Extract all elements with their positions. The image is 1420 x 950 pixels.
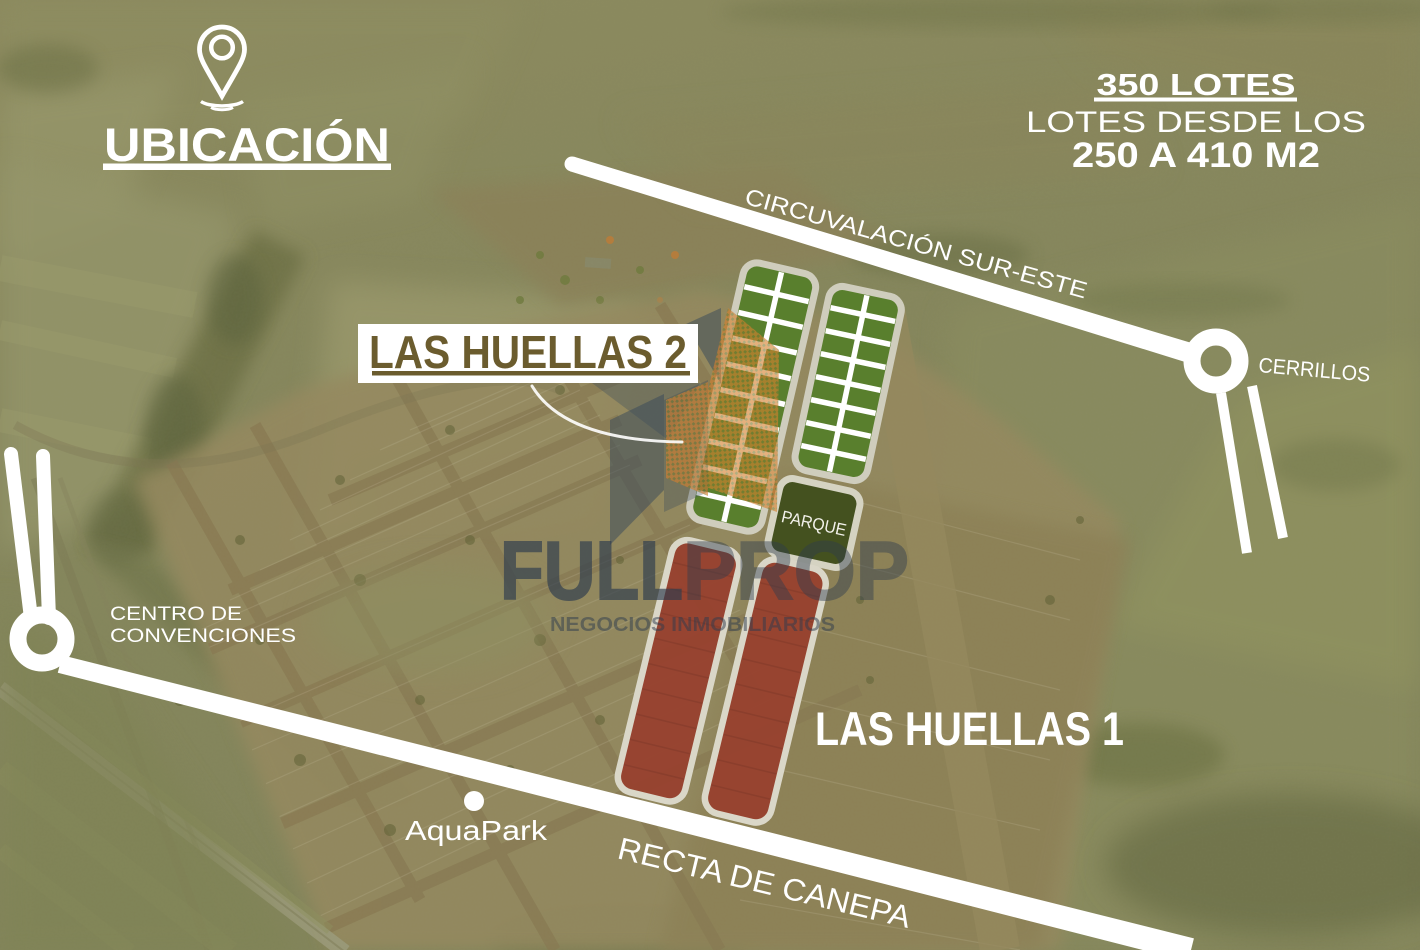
svg-text:NEGOCIOS INMOBILIARIOS: NEGOCIOS INMOBILIARIOS: [550, 614, 835, 636]
svg-text:UBICACIÓN: UBICACIÓN: [104, 118, 390, 171]
svg-text:250 A 410 M2: 250 A 410 M2: [1072, 136, 1320, 175]
svg-text:AquaPark: AquaPark: [405, 815, 548, 846]
svg-text:PROP: PROP: [683, 524, 909, 617]
svg-text:LOTES DESDE LOS: LOTES DESDE LOS: [1026, 106, 1366, 139]
svg-text:FULL: FULL: [500, 524, 683, 617]
svg-text:CENTRO DE: CENTRO DE: [110, 603, 242, 625]
svg-text:CONVENCIONES: CONVENCIONES: [110, 625, 296, 647]
svg-text:350 LOTES: 350 LOTES: [1097, 67, 1296, 102]
svg-text:LAS HUELLAS 1: LAS HUELLAS 1: [815, 702, 1124, 755]
svg-text:LAS HUELLAS 2: LAS HUELLAS 2: [369, 326, 687, 378]
